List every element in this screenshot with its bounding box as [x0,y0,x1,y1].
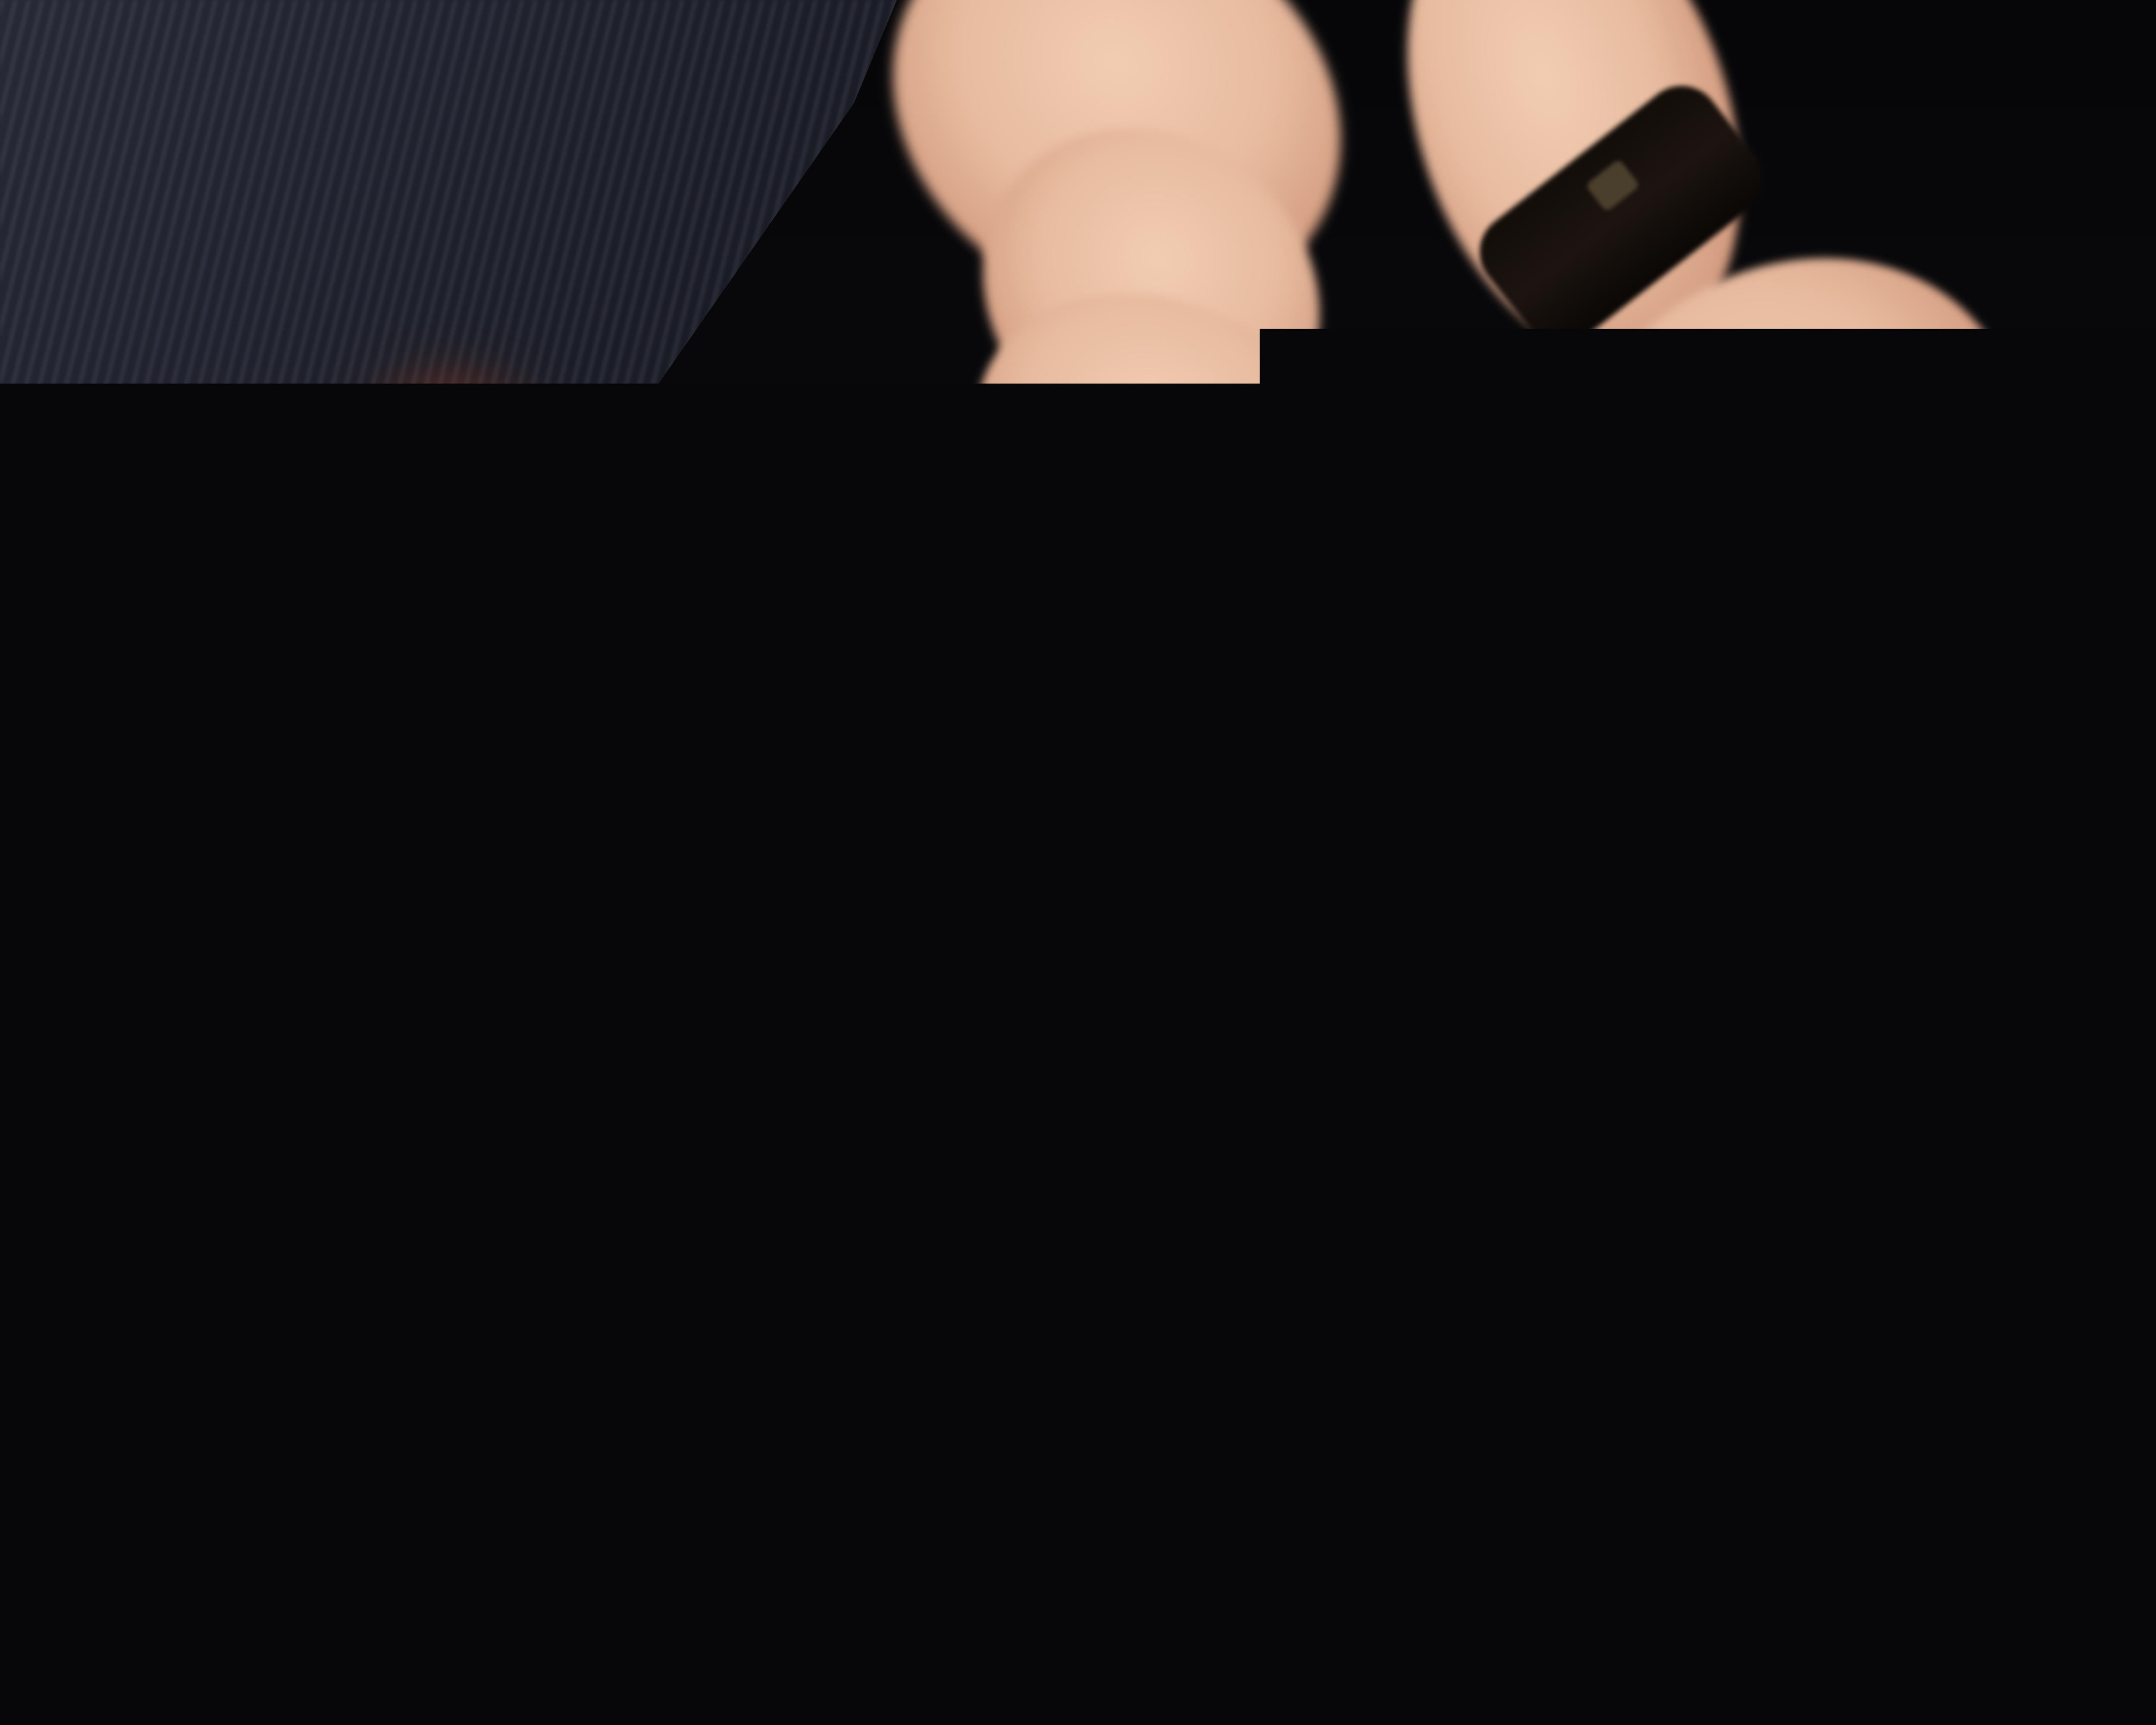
dimension-label-small: 40 [1402,793,1420,808]
faint-wall-line [1272,1608,1279,1725]
door-wood-line [1119,874,1317,894]
marker-number: 3 [1858,1129,1871,1148]
marker-number: 4 [977,986,990,1005]
window-mullion-block [1716,963,1744,991]
faint-wall-line [1130,1406,1139,1725]
dimension-label: 1116 [1282,835,1331,859]
dimension-label-small: 472 [1442,790,1468,805]
dimension-label: 1360 [1141,851,1189,875]
dimension-label: 2160 [938,866,987,890]
dimension-tick [761,905,769,914]
photograph-scene: 800 2160 1360 1116 40 472 75 40 800 1465 [0,0,2156,1725]
dimension-tick [853,897,862,906]
dimension-tick [1103,876,1111,885]
faint-wall-line [927,1440,936,1725]
marker-number: 2 [1523,1010,1536,1029]
circular-bar-ring [1288,1211,1897,1709]
dimension-label: 800 [785,883,822,906]
dimension-tick [724,984,735,991]
